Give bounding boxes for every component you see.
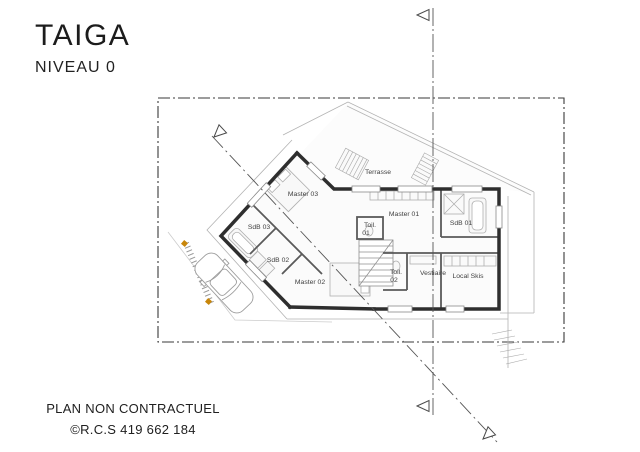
room-label-toil-02: Toil. xyxy=(390,269,402,276)
section-arrow-icon xyxy=(417,10,429,21)
rcs-number: ©R.C.S 419 662 184 xyxy=(38,420,228,441)
disclaimer-text: PLAN NON CONTRACTUEL xyxy=(38,399,228,420)
room-label-toil-01: Toil. xyxy=(364,222,376,229)
room-label-sdb-02: SdB 02 xyxy=(267,257,290,264)
room-label-master-01: Master 01 xyxy=(389,211,419,218)
drawing-footer: PLAN NON CONTRACTUEL ©R.C.S 419 662 184 xyxy=(38,399,228,441)
section-arrow-icon xyxy=(417,401,429,412)
room-label-master-03: Master 03 xyxy=(288,191,318,198)
section-arrow-icon xyxy=(210,125,226,141)
room-label-toil-02-num: 02 xyxy=(390,277,398,284)
floor-plan-canvas: Terrasse Master 03 Master 01 SdB 01 SdB … xyxy=(0,0,640,452)
staircase xyxy=(359,240,393,286)
room-label-terrasse: Terrasse xyxy=(365,169,391,176)
room-label-sdb-03: SdB 03 xyxy=(248,224,271,231)
section-arrow-icon xyxy=(479,427,495,443)
room-label-vestiaire: Vestiaire xyxy=(420,270,446,277)
room-label-local-skis: Local Skis xyxy=(453,273,485,280)
room-label-sdb-01: SdB 01 xyxy=(450,220,473,227)
survey-marker xyxy=(181,240,188,247)
page-root: TAIGA NIVEAU 0 xyxy=(0,0,640,452)
room-label-toil-01-num: 01 xyxy=(362,230,370,237)
survey-marker xyxy=(205,298,212,305)
embankment-hatch xyxy=(492,330,527,364)
room-label-master-02: Master 02 xyxy=(295,279,325,286)
